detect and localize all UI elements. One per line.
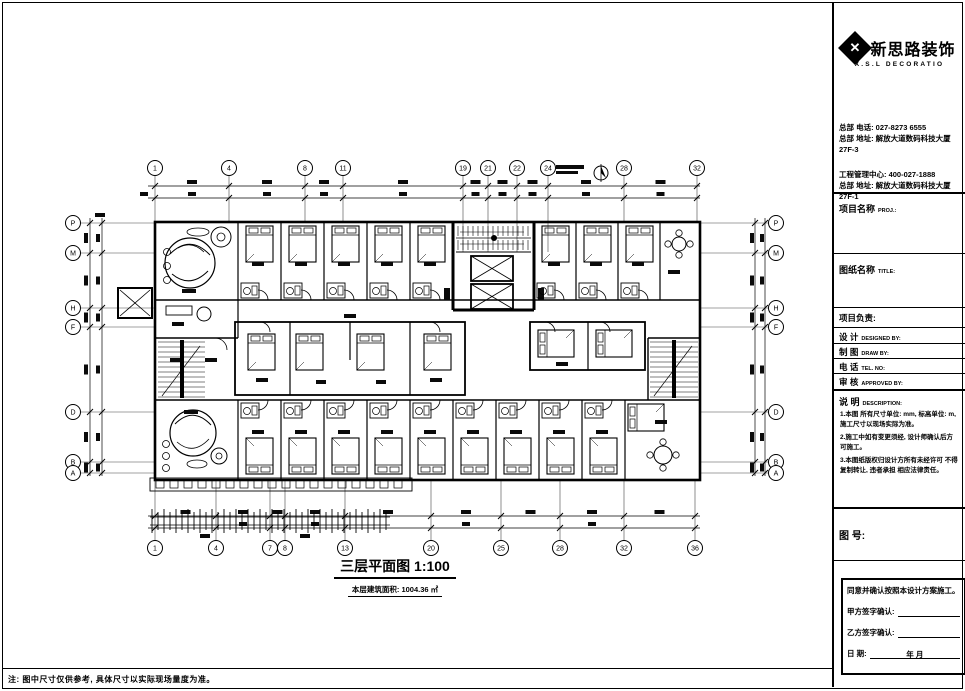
date-row: 日 期:年 月 bbox=[847, 648, 960, 659]
plan-caption: 三层平面图 1:100 本层建筑面积: 1004.36 ㎡ bbox=[295, 556, 495, 597]
svg-text:D: D bbox=[773, 410, 778, 417]
tb-row-3: 审 核APPROVED BY: bbox=[839, 376, 959, 388]
svg-text:1: 1 bbox=[153, 546, 157, 553]
stairs bbox=[158, 340, 698, 398]
drawing-name-section: 图纸名称 TITLE: bbox=[839, 263, 959, 276]
svg-text:4: 4 bbox=[214, 546, 218, 553]
svg-text:22: 22 bbox=[513, 166, 521, 173]
tb-row-1: 制 图DRAW BY: bbox=[839, 346, 959, 358]
company-logo: ✕ 新思路装饰 X.S.L DECORATIO bbox=[834, 36, 965, 68]
party-a-row: 甲方签字确认: bbox=[847, 606, 960, 617]
svg-text:A: A bbox=[71, 471, 76, 478]
date-line[interactable]: 年 月 bbox=[870, 649, 960, 659]
walls bbox=[118, 222, 700, 480]
svg-text:36: 36 bbox=[691, 546, 699, 553]
plan-title: 三层平面图 1:100 bbox=[334, 556, 456, 579]
plan-area-label: 本层建筑面积: 1004.36 ㎡ bbox=[348, 584, 442, 597]
svg-text:M: M bbox=[773, 251, 779, 258]
title-block: ✕ 新思路装饰 X.S.L DECORATIO 总部 电话: 027-8273 … bbox=[832, 2, 965, 687]
party-a-signature-line[interactable] bbox=[898, 607, 961, 617]
svg-text:11: 11 bbox=[339, 166, 346, 173]
svg-text:8: 8 bbox=[303, 166, 307, 173]
figure-number-row: 图 号: bbox=[839, 527, 959, 542]
door-arcs bbox=[215, 290, 648, 410]
elevator-core bbox=[444, 226, 544, 309]
svg-text:P: P bbox=[774, 221, 779, 228]
drawing-sheet: 148111921222428321478132025283236PMHFDBA… bbox=[0, 0, 965, 691]
svg-text:24: 24 bbox=[544, 166, 552, 173]
tb-row-2: 电 话TEL. NO: bbox=[839, 361, 959, 373]
svg-text:F: F bbox=[71, 325, 75, 332]
svg-text:32: 32 bbox=[693, 166, 701, 173]
project-leader-row: 项目负责: bbox=[839, 312, 959, 324]
remarks-section-header: 说 明 DESCRIPTION: bbox=[839, 395, 959, 408]
svg-text:4: 4 bbox=[227, 166, 231, 173]
furniture bbox=[163, 226, 694, 474]
logo-chinese-name: 新思路装饰 bbox=[870, 36, 955, 60]
svg-text:25: 25 bbox=[497, 546, 505, 553]
level-annotation bbox=[556, 164, 608, 182]
svg-text:28: 28 bbox=[556, 546, 564, 553]
party-b-row: 乙方签字确认: bbox=[847, 627, 960, 638]
svg-text:28: 28 bbox=[620, 166, 628, 173]
svg-text:H: H bbox=[773, 306, 778, 313]
svg-text:8: 8 bbox=[283, 546, 287, 553]
contact-phone: 总部 电话: 027-8273 6555 bbox=[839, 122, 961, 133]
tb-row-0: 设 计DESIGNED BY: bbox=[839, 331, 959, 343]
svg-text:D: D bbox=[70, 410, 75, 417]
svg-text:H: H bbox=[70, 306, 75, 313]
svg-text:32: 32 bbox=[620, 546, 628, 553]
project-name-section: 项目名称 PROJ.: bbox=[839, 202, 959, 215]
contact-address-2: 总部 地址: 解放大道数码科技大厦27F-1 bbox=[839, 180, 961, 202]
note-divider bbox=[2, 668, 833, 669]
svg-text:P: P bbox=[71, 221, 76, 228]
party-b-signature-line[interactable] bbox=[898, 628, 961, 638]
svg-text:13: 13 bbox=[341, 546, 349, 553]
contact-address: 总部 地址: 解放大道数码科技大厦27F-3 bbox=[839, 133, 961, 155]
svg-text:7: 7 bbox=[268, 546, 272, 553]
confirmation-box: 同意并确认按照本设计方案施工。 甲方签字确认: 乙方签字确认: 日 期:年 月 bbox=[841, 578, 965, 675]
svg-text:21: 21 bbox=[484, 166, 492, 173]
contact-center: 工程管理中心: 400-027-1888 bbox=[839, 169, 961, 180]
remarks-list: 1.本图 所有尺寸单位: mm, 标高单位: m, 施工尺寸以现场实际为准。2.… bbox=[840, 410, 958, 479]
terrace bbox=[150, 478, 412, 538]
svg-text:A: A bbox=[774, 471, 779, 478]
agree-text: 同意并确认按照本设计方案施工。 bbox=[847, 585, 960, 596]
svg-text:M: M bbox=[70, 251, 76, 258]
svg-text:20: 20 bbox=[427, 546, 435, 553]
svg-text:F: F bbox=[774, 325, 778, 332]
logo-diamond-icon: ✕ bbox=[839, 31, 873, 65]
bottom-note: 注: 图中尺寸仅供参考, 具体尺寸以实际现场量度为准。 bbox=[8, 674, 215, 685]
svg-text:19: 19 bbox=[459, 166, 467, 173]
contact-info: 总部 电话: 027-8273 6555 总部 地址: 解放大道数码科技大厦27… bbox=[839, 122, 961, 202]
svg-text:1: 1 bbox=[153, 166, 157, 173]
